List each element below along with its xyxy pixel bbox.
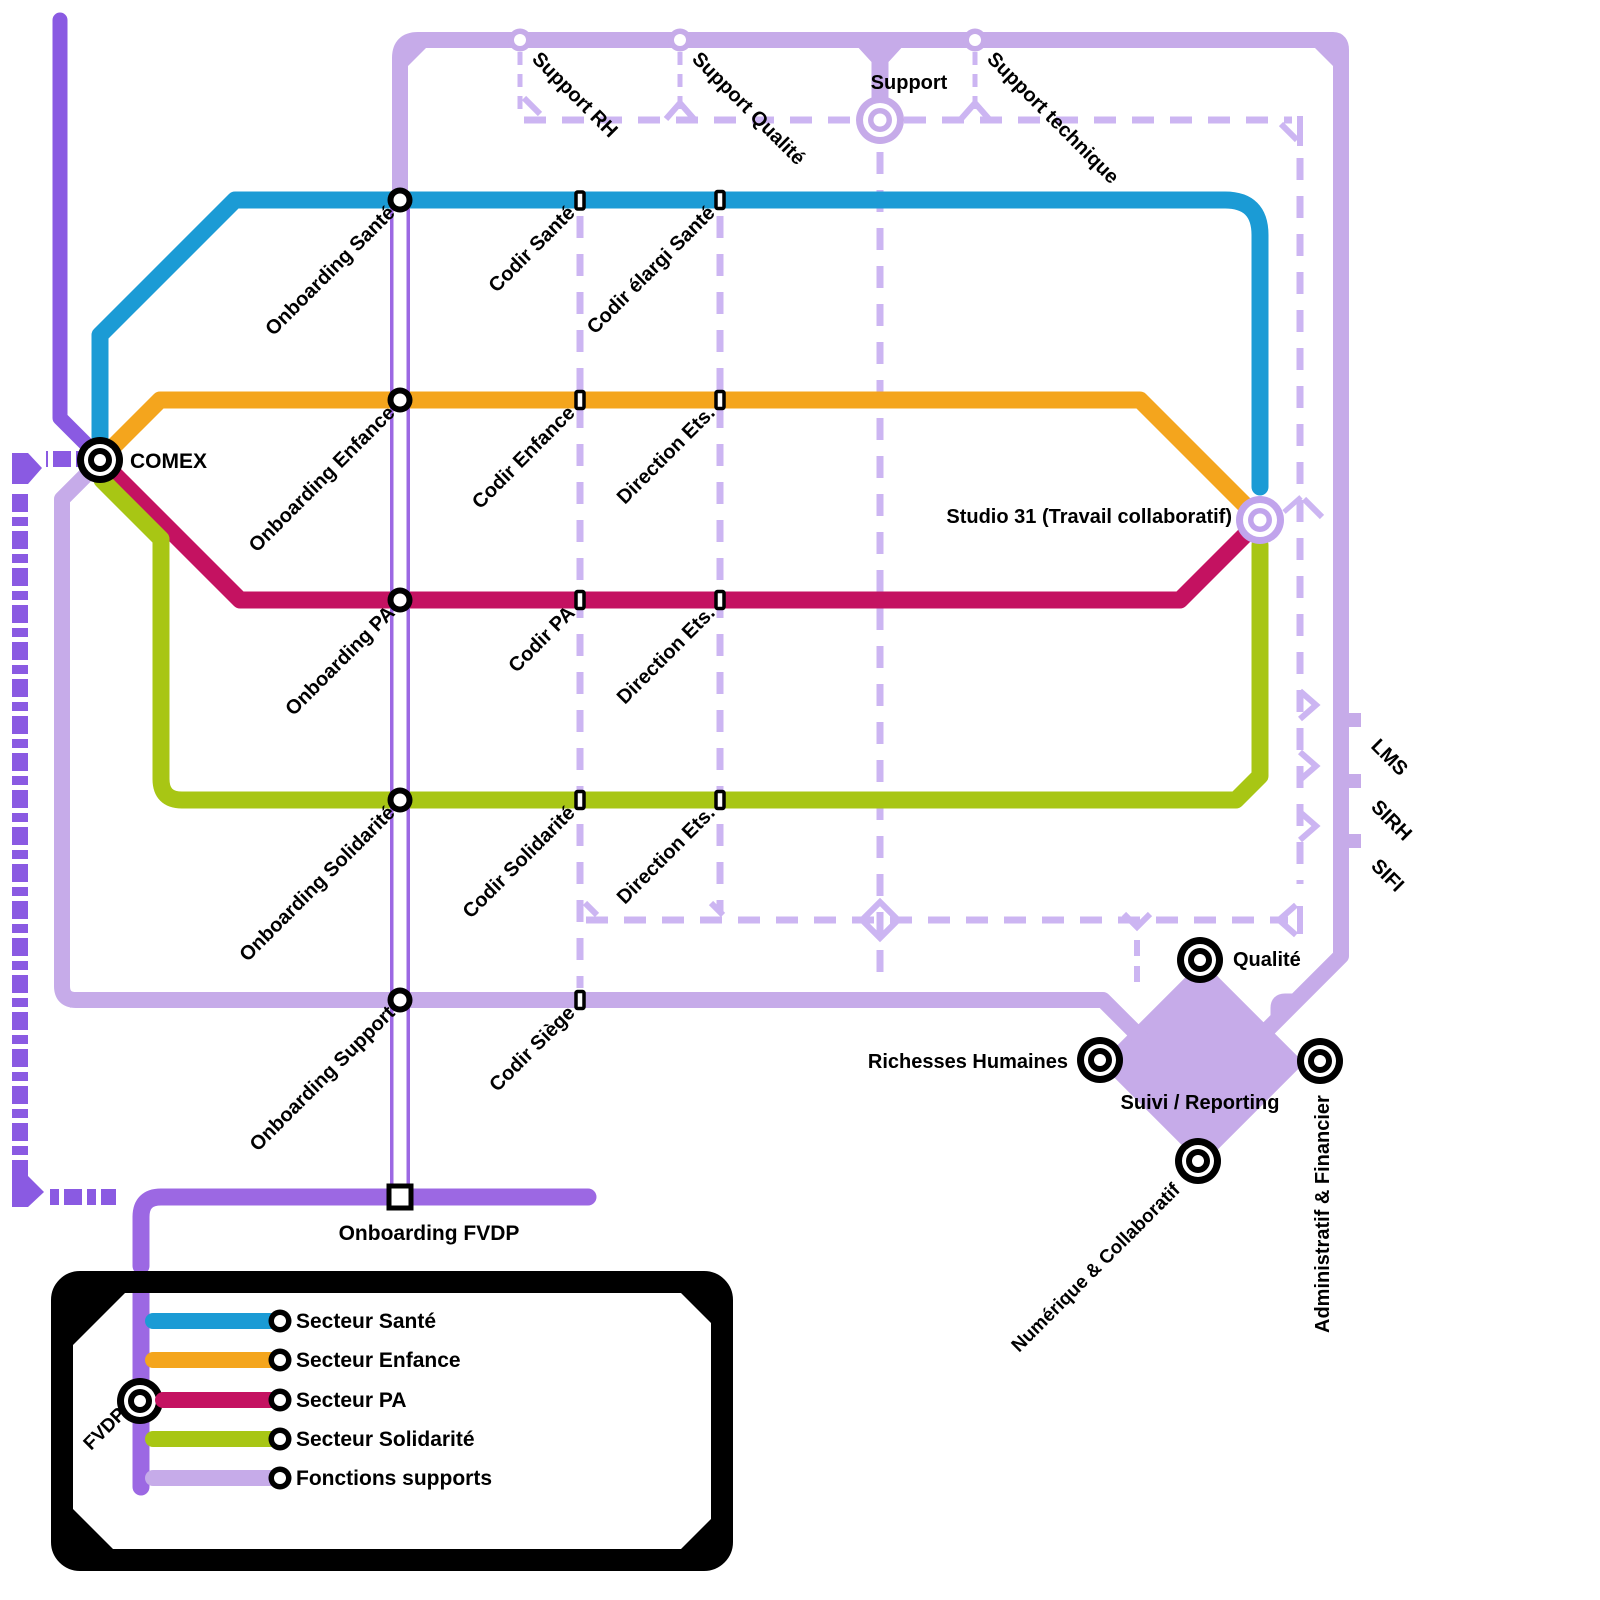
svg-text:Secteur PA: Secteur PA xyxy=(296,1389,407,1412)
svg-text:Richesses Humaines: Richesses Humaines xyxy=(868,1051,1068,1073)
svg-text:Support: Support xyxy=(871,72,948,94)
svg-text:Qualité: Qualité xyxy=(1233,949,1301,971)
svg-text:Suivi / Reporting: Suivi / Reporting xyxy=(1121,1092,1280,1114)
svg-text:Onboarding FVDP: Onboarding FVDP xyxy=(339,1222,520,1245)
svg-text:Secteur Enfance: Secteur Enfance xyxy=(296,1349,461,1372)
svg-text:COMEX: COMEX xyxy=(130,450,207,473)
svg-text:Administratif & Financier: Administratif & Financier xyxy=(1312,1095,1334,1333)
svg-text:Secteur Solidarité: Secteur Solidarité xyxy=(296,1428,475,1451)
svg-text:Fonctions supports: Fonctions supports xyxy=(296,1467,492,1490)
svg-text:Secteur Santé: Secteur Santé xyxy=(296,1310,436,1333)
svg-text:Studio 31 (Travail collaborati: Studio 31 (Travail collaboratif) xyxy=(946,506,1232,528)
